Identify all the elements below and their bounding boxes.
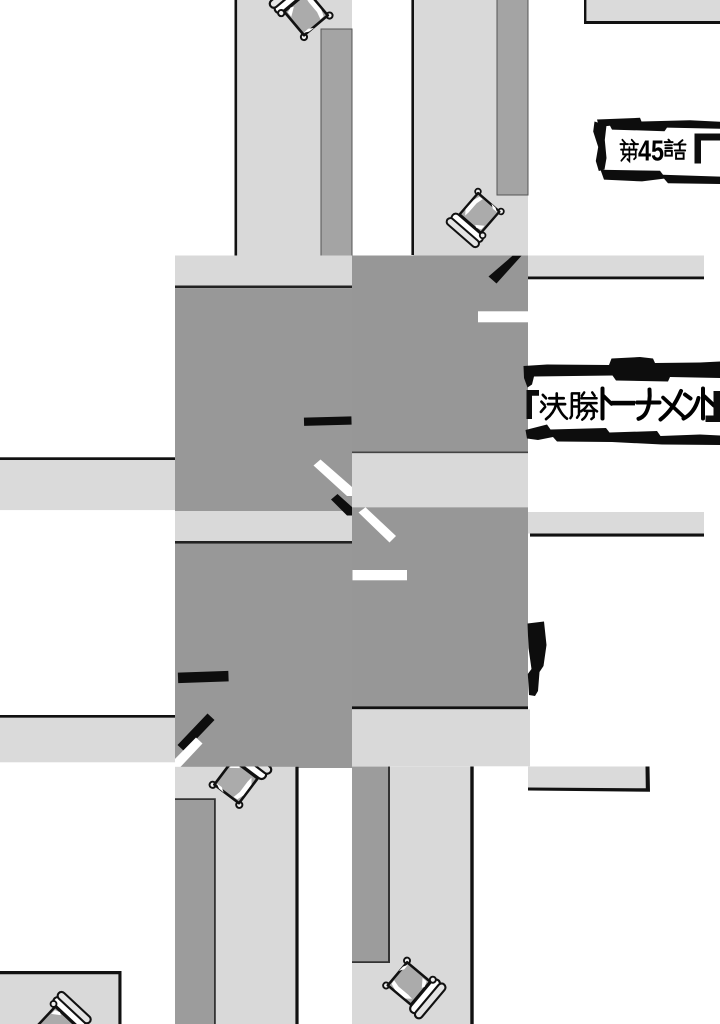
svg-text:45: 45 <box>638 136 664 168</box>
